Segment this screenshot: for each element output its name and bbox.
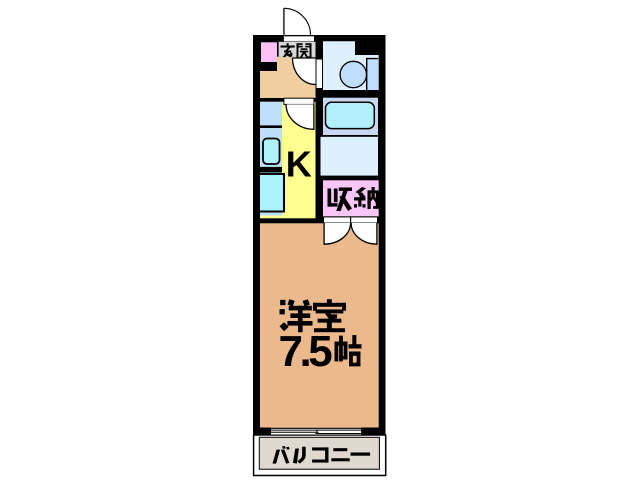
svg-text:K: K (286, 144, 312, 185)
svg-text:7.5: 7.5 (279, 327, 333, 376)
